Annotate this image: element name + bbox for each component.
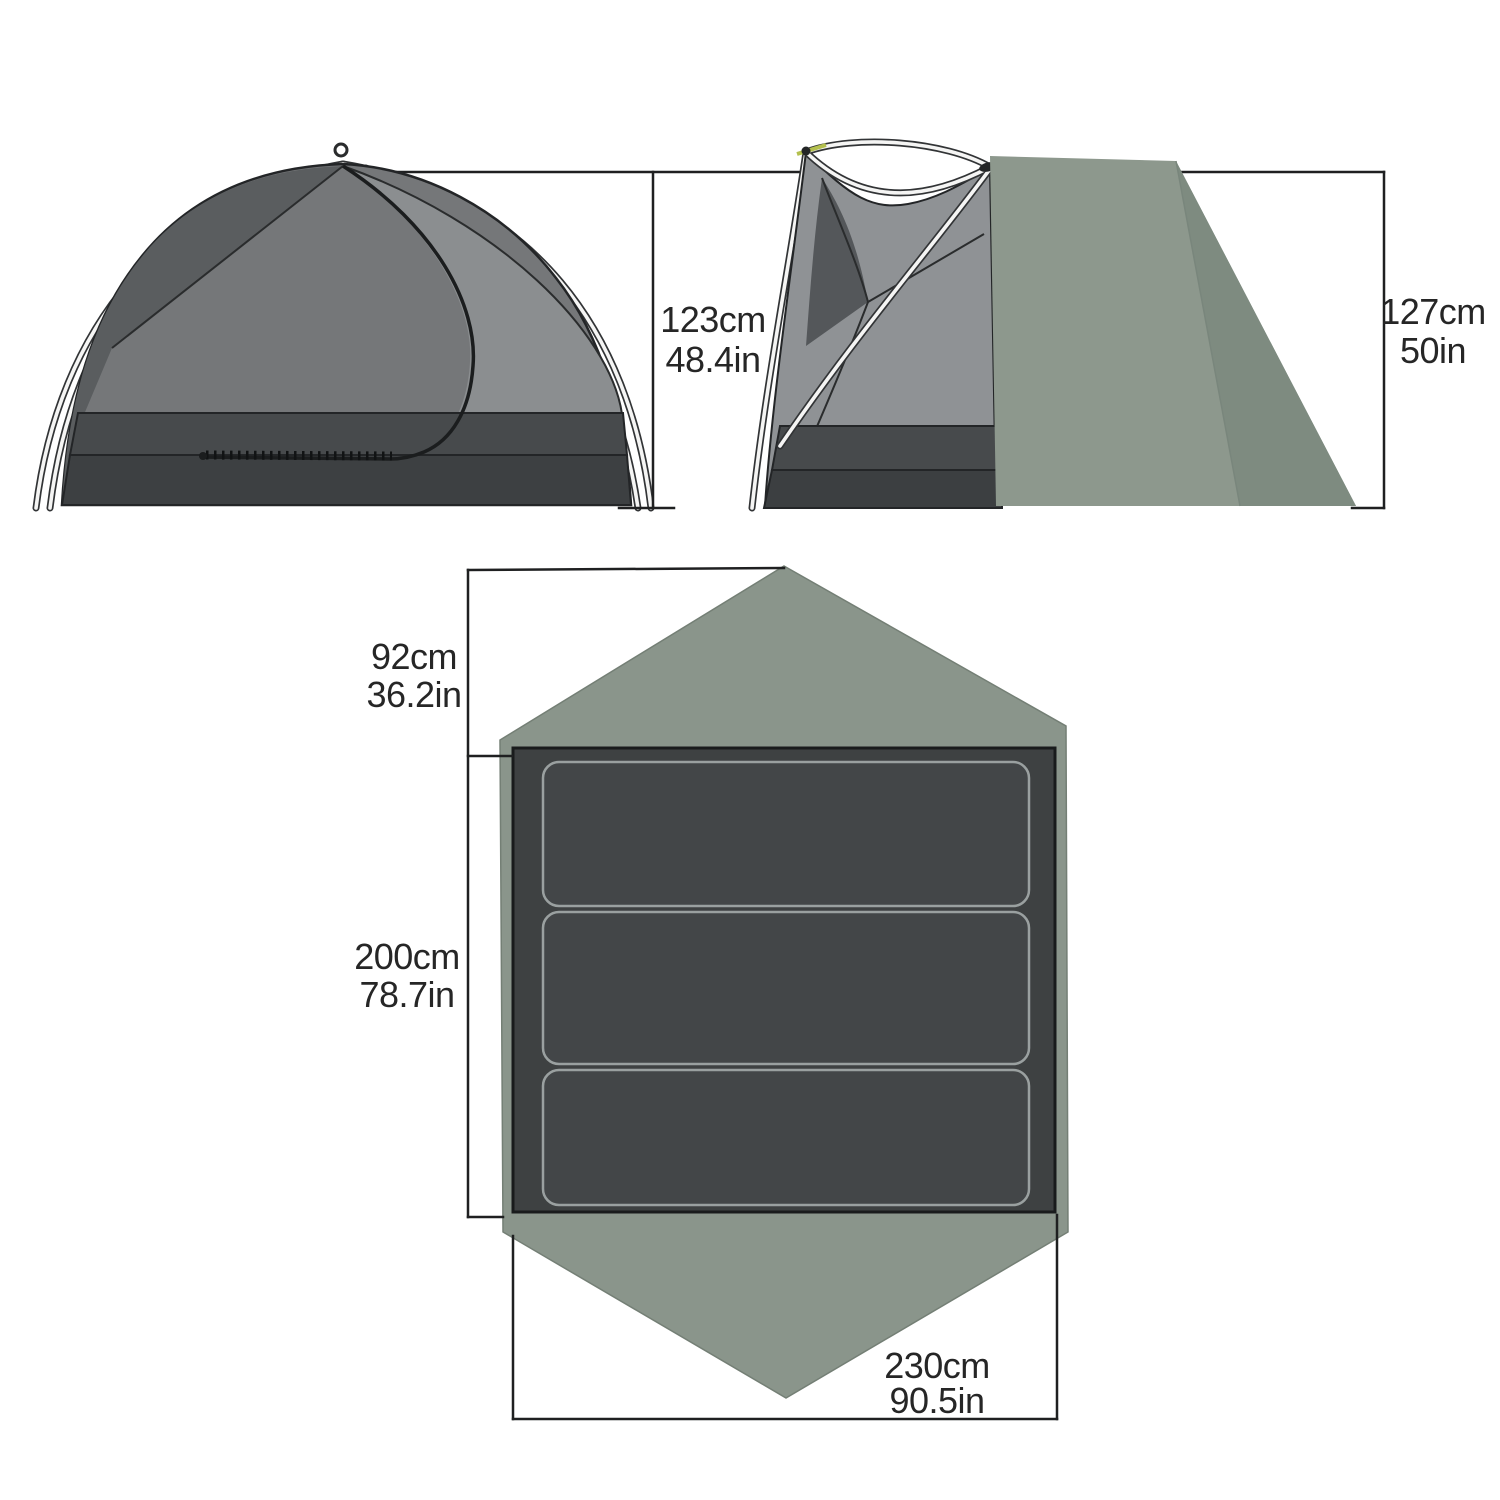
sleeping-pad-2 [543,912,1029,1064]
end-height-label-cm: 127cm [1380,291,1486,332]
height-dimension-end [1352,172,1384,508]
sleeping-pad-1 [543,762,1029,906]
floor-width-label-in: 90.5in [889,1380,984,1421]
floor-length-label-cm: 200cm [354,936,460,977]
sleeping-pad-3 [543,1070,1029,1205]
pole-tip-clip [802,147,811,156]
vestibule-depth-label-cm: 92cm [371,636,457,677]
sleeping-pads [543,762,1029,1205]
bathtub-upper-band [70,413,627,455]
tent-side-view-illustration [36,144,651,508]
tent-end-view-illustration [752,142,1356,508]
diagram-svg: 123cm 48.4in 127cm 50in 92cm 36.2in 200c… [0,0,1500,1500]
side-height-label-cm: 123cm [660,299,766,340]
side-height-label-in: 48.4in [665,339,760,380]
apex-guyline-loop [335,144,347,156]
tent-dimensions-diagram: 123cm 48.4in 127cm 50in 92cm 36.2in 200c… [0,0,1500,1500]
bathtub-lower-band [62,455,631,505]
end-bathtub-upper [772,426,1002,470]
vestibule-depth-label-in: 36.2in [366,674,461,715]
end-bathtub-lower [764,470,1002,508]
tent-floorplan-illustration [500,566,1068,1398]
floor-length-label-in: 78.7in [359,974,454,1015]
end-height-label-in: 50in [1400,330,1466,371]
